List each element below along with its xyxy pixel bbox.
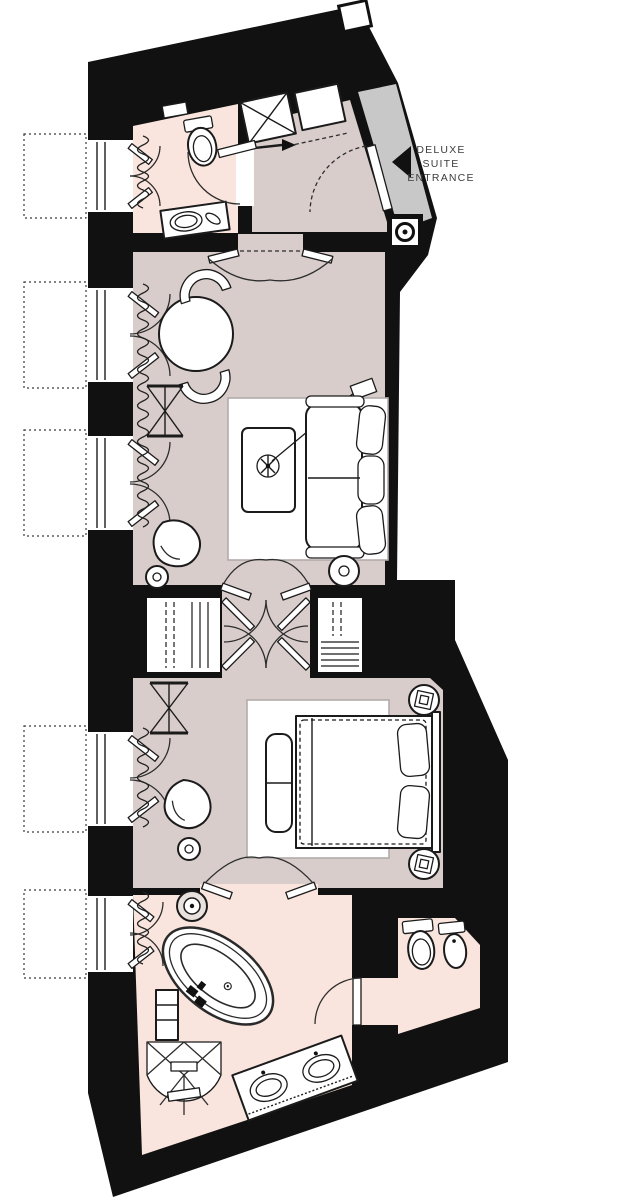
cabinet [156, 990, 178, 1040]
doorway-vestibule-bath [236, 150, 254, 206]
headboard [432, 712, 440, 852]
entrance-label-line1: DELUXE [416, 144, 465, 156]
nightstand-bottom [409, 849, 439, 879]
floor-plan-page: DELUXE SUITE ENTRANCE [0, 0, 638, 1200]
floor-plan: DELUXE SUITE ENTRANCE [0, 0, 638, 1200]
wardrobe-left [147, 598, 220, 672]
entry-closet [295, 84, 346, 130]
double-bed [296, 712, 440, 852]
wardrobe-right [318, 598, 362, 672]
pillow [397, 723, 430, 777]
bench [266, 734, 292, 832]
round-table-top [153, 573, 161, 581]
sofa [306, 396, 386, 558]
service-shaft [240, 92, 296, 143]
shaft-box [339, 0, 372, 31]
entrance-label-line3: ENTRANCE [407, 172, 474, 184]
entrance-label-line2: SUITE [423, 158, 460, 170]
door-detail [387, 214, 423, 250]
nightstand-top [409, 685, 439, 715]
pillow [397, 785, 430, 839]
stool [177, 891, 207, 921]
round-table-top [185, 845, 193, 853]
side-table-top [339, 566, 349, 576]
dining-table [159, 297, 233, 371]
